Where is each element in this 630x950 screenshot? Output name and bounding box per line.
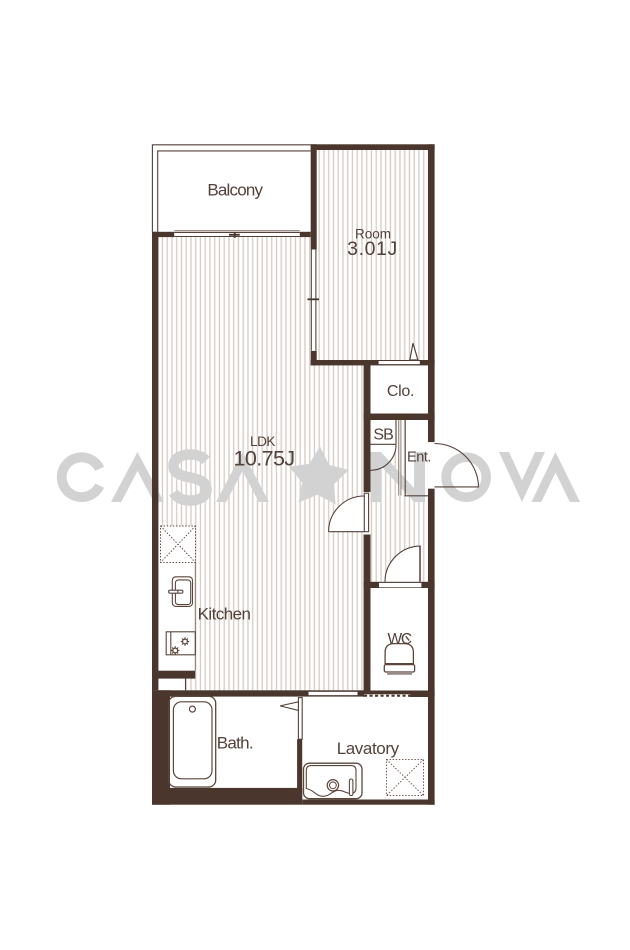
svg-text:10.75J: 10.75J [234, 446, 295, 470]
svg-text:Balcony: Balcony [207, 180, 263, 199]
svg-text:Ent.: Ent. [407, 450, 431, 466]
svg-text:Kitchen: Kitchen [198, 604, 251, 623]
svg-text:Clo.: Clo. [387, 383, 414, 400]
svg-text:Bath.: Bath. [217, 733, 253, 752]
svg-text:Lavatory: Lavatory [337, 739, 400, 758]
svg-text:WC: WC [387, 631, 411, 648]
svg-text:3.01J: 3.01J [347, 238, 398, 260]
svg-text:SB: SB [373, 426, 393, 443]
